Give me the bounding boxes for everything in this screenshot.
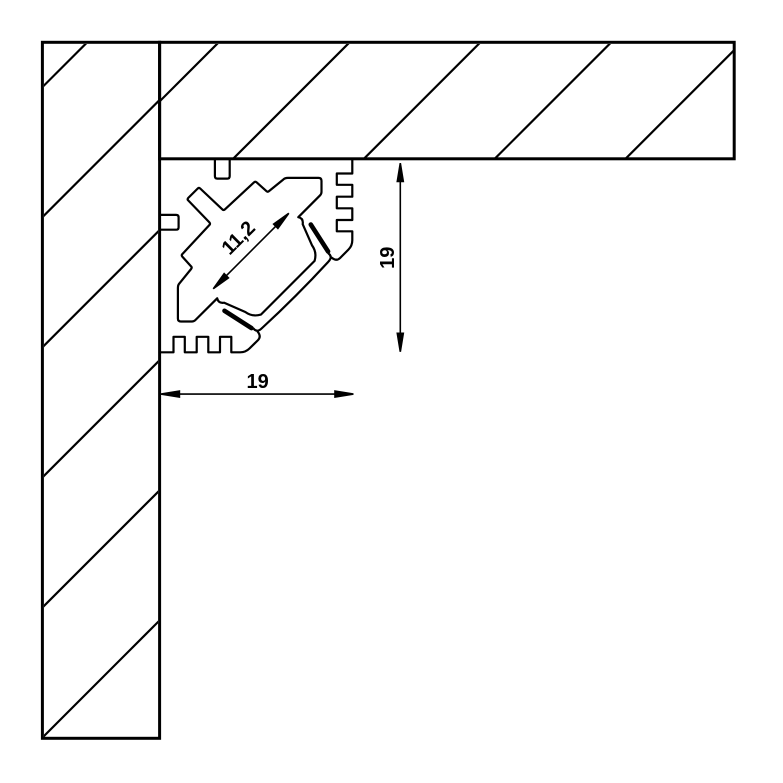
svg-text:19: 19 [246,371,268,393]
svg-text:11,2: 11,2 [218,217,260,259]
svg-text:19: 19 [377,247,399,269]
